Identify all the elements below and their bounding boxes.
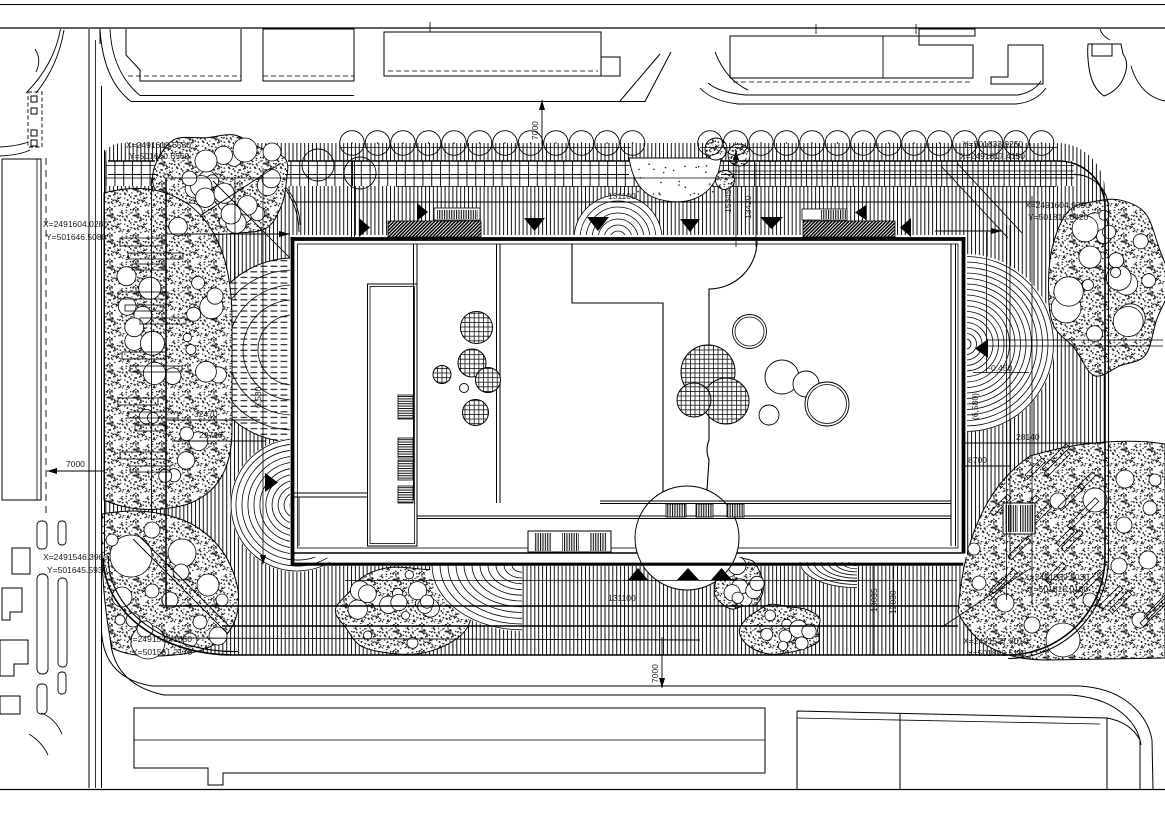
svg-text:Y=501645.5930: Y=501645.5930 xyxy=(47,565,108,575)
svg-text:15345: 15345 xyxy=(723,189,733,213)
svg-text:X=2491539.9030: X=2491539.9030 xyxy=(1024,572,1089,582)
svg-text:X=2491817.4150: X=2491817.4150 xyxy=(960,151,1025,161)
svg-text:X=2491604.9090: X=2491604.9090 xyxy=(1025,200,1090,210)
svg-text:(6,580): (6,580) xyxy=(970,393,980,420)
svg-text:32470: 32470 xyxy=(194,409,218,419)
svg-text:7000: 7000 xyxy=(650,664,660,683)
svg-text:X=2491527.8010: X=2491527.8010 xyxy=(963,636,1028,646)
svg-text:131100: 131100 xyxy=(608,593,636,603)
svg-text:Y=501646.5080: Y=501646.5080 xyxy=(46,232,107,242)
svg-text:X=2491604.0280: X=2491604.0280 xyxy=(43,219,108,229)
svg-text:7000: 7000 xyxy=(530,121,540,140)
svg-text:131100: 131100 xyxy=(608,191,636,201)
svg-text:Y=501561.2170: Y=501561.2170 xyxy=(132,647,193,657)
svg-text:Y=501833.9250: Y=501833.9250 xyxy=(963,139,1024,149)
svg-text:Y=501816.0420: Y=501816.0420 xyxy=(1028,212,1089,222)
svg-text:28140: 28140 xyxy=(1016,432,1040,442)
svg-text:X=2491619.6530: X=2491619.6530 xyxy=(126,140,191,150)
svg-text:X=2491546.3960: X=2491546.3960 xyxy=(43,552,108,562)
svg-text:6,580: 6,580 xyxy=(253,386,263,408)
svg-text:Y=501815.0130: Y=501815.0130 xyxy=(1028,584,1089,594)
svg-text:X=2491536.1650: X=2491536.1650 xyxy=(127,634,192,644)
svg-text:−0,450: −0,450 xyxy=(986,363,1013,373)
svg-text:Y=501660.6560: Y=501660.6560 xyxy=(129,151,190,161)
svg-text:29780: 29780 xyxy=(199,430,223,440)
svg-text:13420: 13420 xyxy=(743,195,753,219)
svg-text:7000: 7000 xyxy=(66,459,85,469)
svg-text:18035: 18035 xyxy=(869,588,879,612)
svg-text:8700: 8700 xyxy=(968,455,987,465)
svg-text:Y=501802.5110: Y=501802.5110 xyxy=(967,648,1027,658)
